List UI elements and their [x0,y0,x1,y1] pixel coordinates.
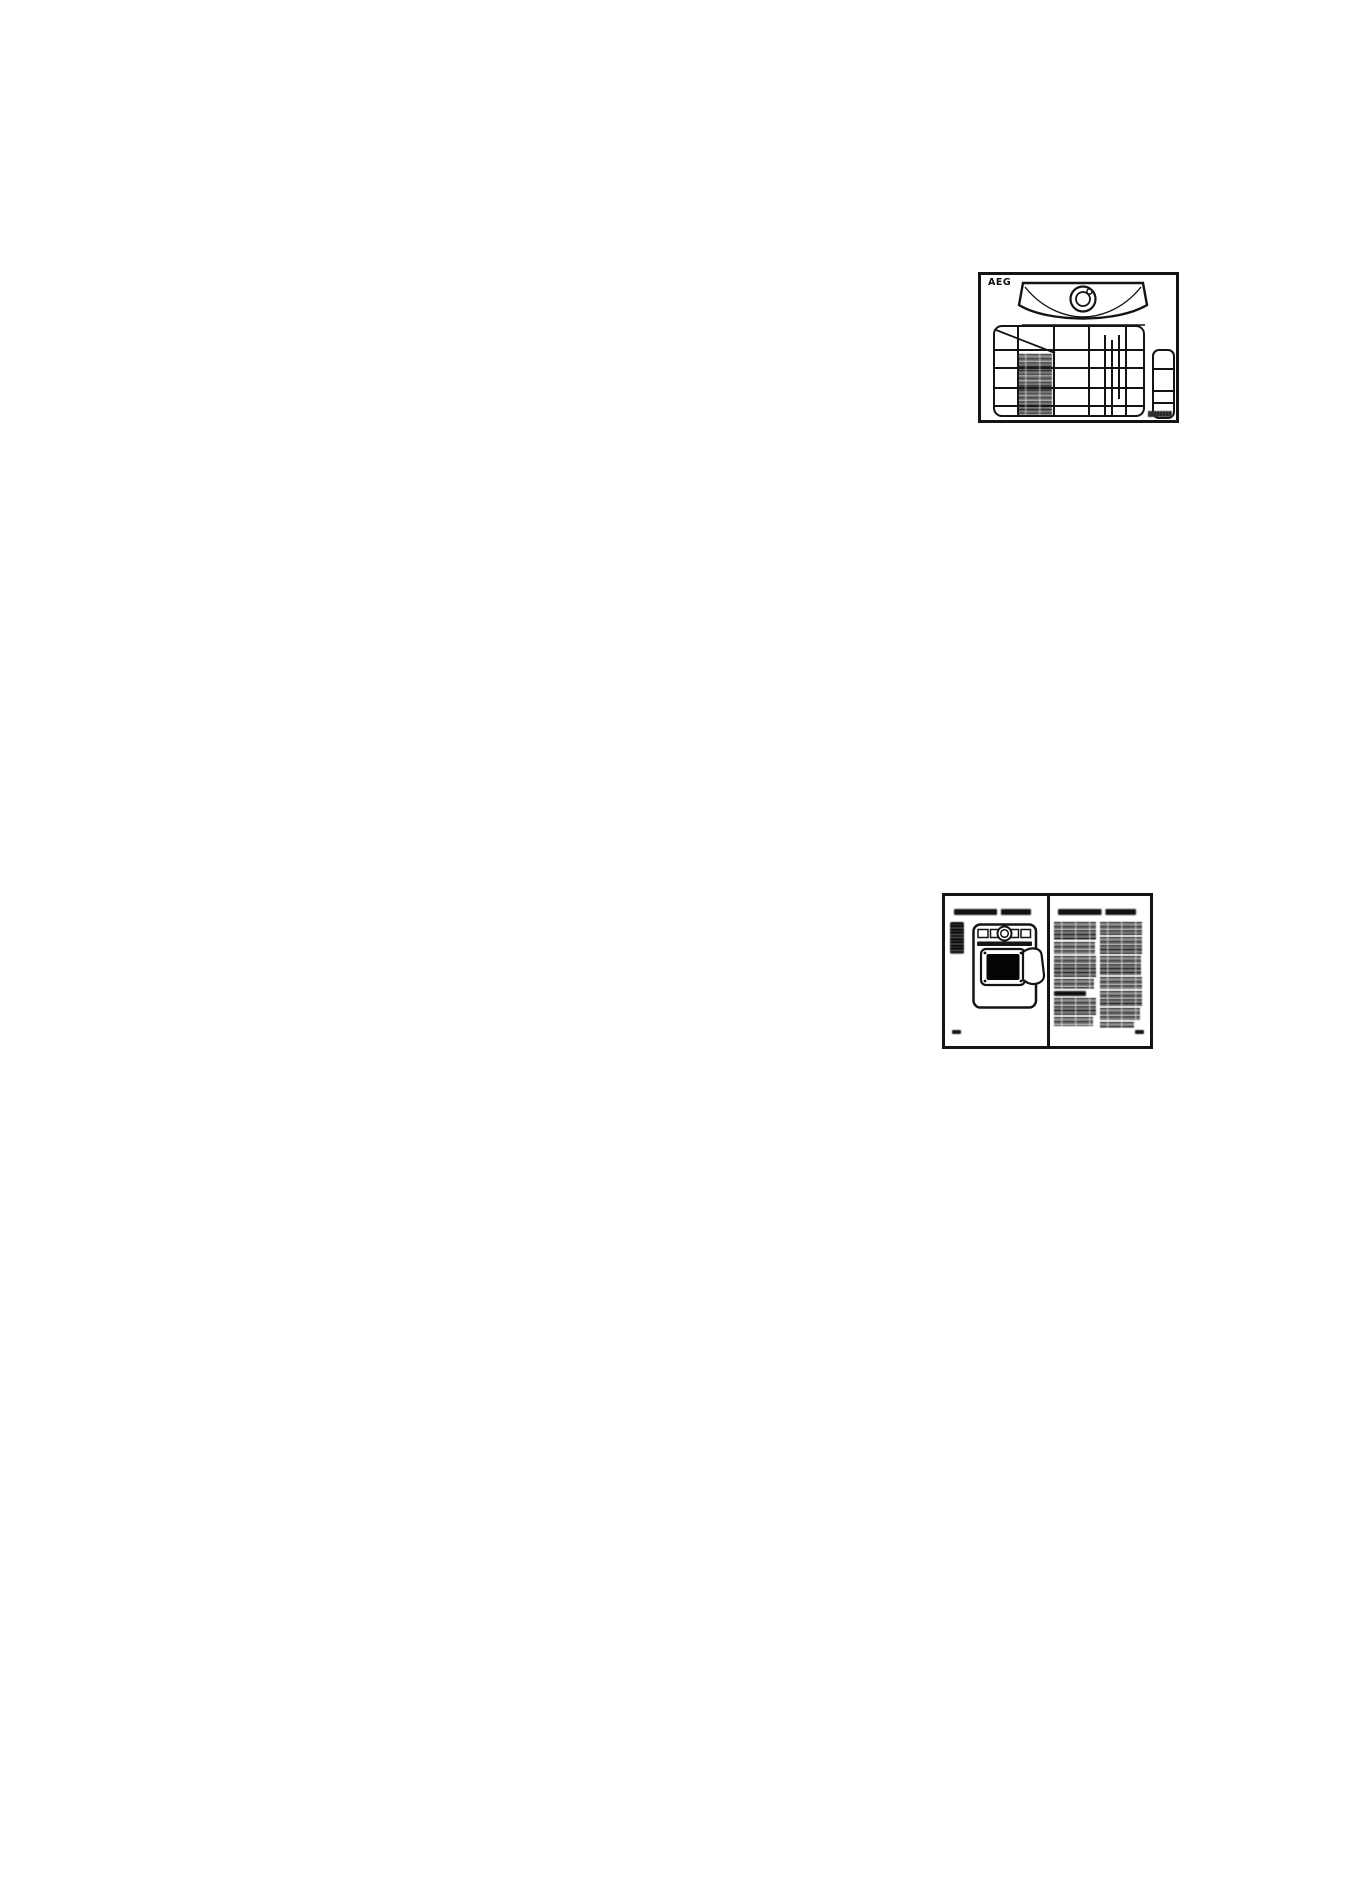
page-gutter-divider [1047,896,1050,1046]
text-block-placeholder [1100,1022,1134,1028]
brand-logo: AEG [988,278,1011,288]
text-block-placeholder [1100,1008,1140,1020]
text-block-placeholder [1054,942,1095,954]
appliance-figure-content: AEG [981,275,1176,420]
right-page-heading-placeholder [1058,909,1136,915]
table-vertical-mark [1118,335,1120,399]
program-table-illustration [993,325,1145,417]
open-door-illustration [1023,948,1044,984]
text-block-placeholder [1054,1017,1093,1026]
control-panel-illustration [1014,279,1152,327]
side-panel-line [1154,368,1173,370]
text-block-placeholder [1054,998,1096,1015]
right-page-number-mark [1135,1030,1144,1034]
text-block-placeholder [1100,977,1142,989]
dryer-dial-icon [998,927,1012,941]
table-text-placeholder [1018,354,1052,416]
text-block-placeholder [1100,937,1142,954]
left-page-heading-placeholder [954,909,1031,915]
figure-code-smudge [1148,411,1172,417]
scanned-document-page: AEG [0,0,1348,1879]
text-block-placeholder [1054,922,1096,940]
door-opening-illustration [987,954,1020,980]
side-panel-line [1154,402,1173,404]
table-vertical-mark [1104,335,1106,415]
text-block-placeholder [1054,956,1096,977]
left-page-number-mark [952,1030,961,1034]
subheading-placeholder [1054,991,1086,996]
side-panel-illustration [1152,349,1175,419]
table-vertical-mark [1111,340,1113,415]
text-block-placeholder [1100,991,1142,1006]
text-block-placeholder [1054,979,1094,989]
manual-spread-content [945,896,1150,1046]
appliance-figure: AEG [978,272,1179,423]
legend-list-placeholder [950,922,964,954]
manual-spread-figure [942,893,1153,1049]
text-block-placeholder [1100,956,1141,975]
dryer-illustration [972,923,1046,1009]
side-panel-line [1154,390,1173,392]
text-block-placeholder [1100,922,1142,935]
